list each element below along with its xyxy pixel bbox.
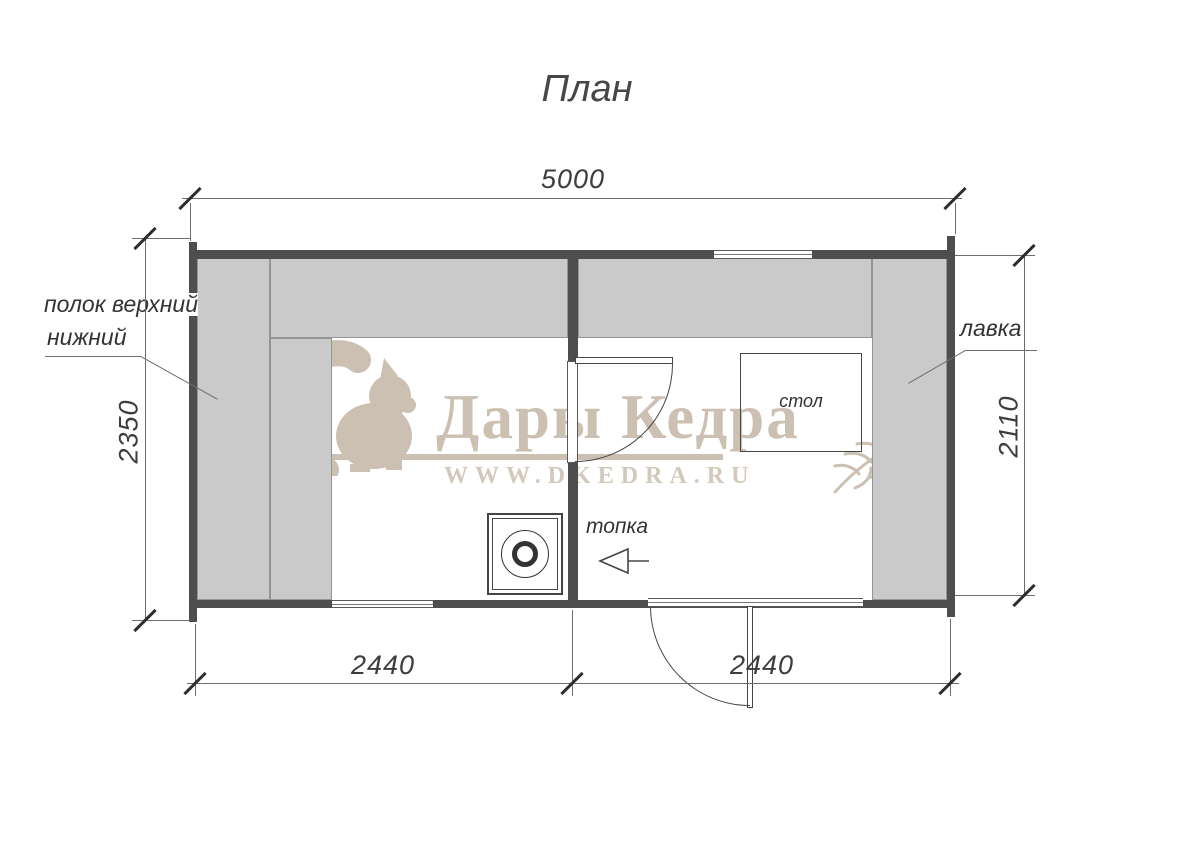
window-bottom-right [750, 598, 863, 607]
bench-top-steam-room [270, 258, 568, 338]
bench-label: лавка [960, 317, 1021, 340]
page-title: План [487, 68, 687, 111]
table-label: стол [740, 392, 862, 410]
window-top-wall [714, 250, 812, 259]
floor-plan-canvas: План Дары Кедра WWW.DKEDRA.RU [0, 0, 1200, 848]
wall-right [947, 236, 955, 617]
dimension-top-ext-right [955, 203, 956, 234]
dimension-left-line [145, 238, 146, 621]
dimension-left-value: 2350 [114, 392, 145, 472]
watermark-website-text: WWW.DKEDRA.RU [444, 464, 718, 488]
dimension-right-value: 2110 [994, 387, 1025, 467]
dimension-top-value: 5000 [523, 164, 623, 195]
firebox-label: топка [586, 516, 648, 537]
shelf-lower-area [270, 338, 332, 600]
bench-right-area [872, 258, 947, 600]
shelf-upper-area [197, 258, 270, 600]
dimension-top-ext-left [190, 203, 191, 241]
interior-door-leaf [575, 357, 673, 364]
watermark-underline [299, 454, 723, 460]
shelves-leader-line [45, 356, 141, 357]
bench-leader-line [965, 350, 1037, 351]
dimension-top-line [182, 198, 962, 199]
firebox-arrow-icon [597, 546, 651, 576]
dimension-bottom-left-value: 2440 [333, 650, 433, 681]
dimension-bottom-right-value: 2440 [712, 650, 812, 681]
stove-ring [512, 541, 538, 567]
shelves-label-line1: полок верхний [44, 293, 198, 316]
window-bottom-left [332, 600, 433, 608]
wall-partition-upper [568, 256, 578, 362]
wall-partition-lower [568, 462, 578, 600]
shelves-label-line2: нижний [47, 326, 127, 349]
bench-top-rest-room [578, 258, 872, 338]
